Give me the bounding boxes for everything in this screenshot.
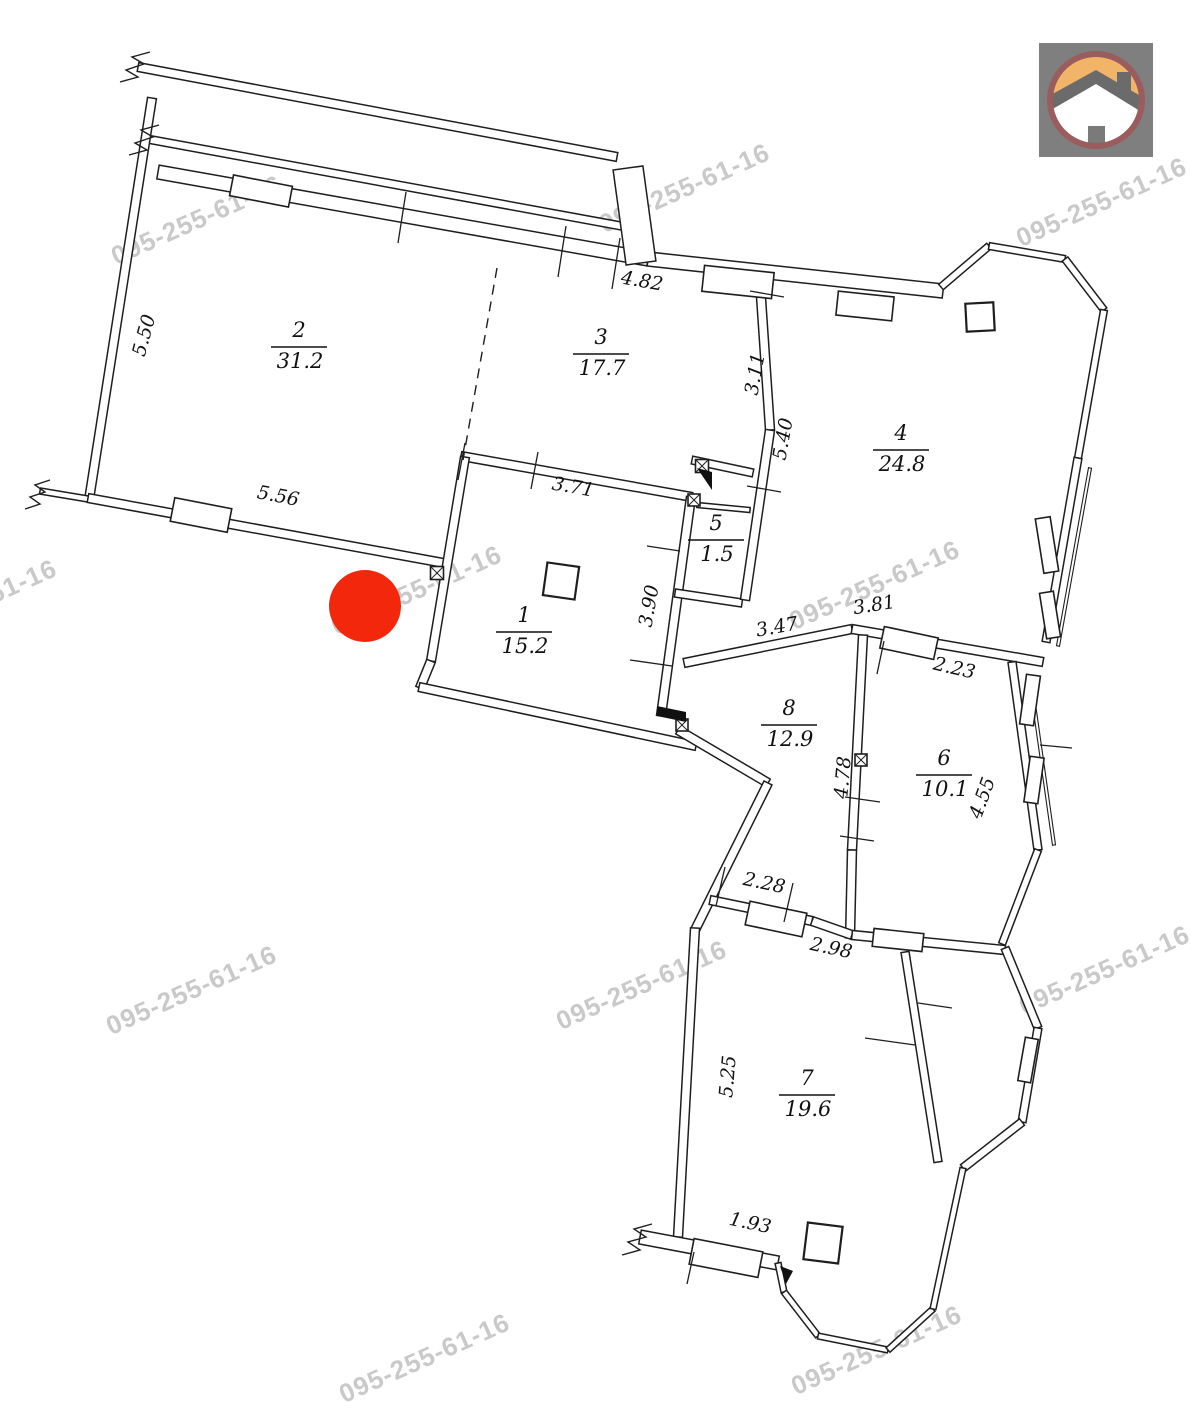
vent-shaft-icon xyxy=(431,567,444,580)
room-area: 17.7 xyxy=(579,356,626,380)
column-symbol xyxy=(543,562,579,599)
room-area: 31.2 xyxy=(277,349,324,373)
room-number: 3 xyxy=(594,325,607,349)
room-number: 6 xyxy=(937,746,950,770)
room-number: 1 xyxy=(517,603,530,627)
wall-segment xyxy=(846,850,857,938)
column-symbol xyxy=(803,1223,842,1264)
room-number: 7 xyxy=(800,1066,814,1090)
room-area: 1.5 xyxy=(700,542,733,566)
room-area: 12.9 xyxy=(767,727,814,751)
room-area: 19.6 xyxy=(785,1097,832,1121)
room-area: 24.8 xyxy=(878,452,926,476)
column-symbol xyxy=(965,302,994,331)
floor-plan-page: 095-255-61-16095-255-61-16095-255-61-160… xyxy=(0,0,1191,1420)
dimension-label: 4.78 xyxy=(830,755,856,800)
agency-logo xyxy=(1039,43,1153,157)
room-number: 4 xyxy=(893,421,907,445)
dimension-label: 5.25 xyxy=(715,1054,741,1098)
logo-chimney xyxy=(1117,72,1131,96)
room-number: 2 xyxy=(291,318,305,342)
room-number: 5 xyxy=(709,511,722,535)
vent-shaft-icon xyxy=(855,754,867,766)
red-marker xyxy=(329,570,401,642)
window-symbol xyxy=(836,291,894,321)
room-area: 10.1 xyxy=(922,777,969,801)
room-area: 15.2 xyxy=(502,634,549,658)
floor-plan-svg: 095-255-61-16095-255-61-16095-255-61-160… xyxy=(0,0,1191,1420)
room-number: 8 xyxy=(782,696,795,720)
vent-shaft-icon xyxy=(688,494,700,506)
